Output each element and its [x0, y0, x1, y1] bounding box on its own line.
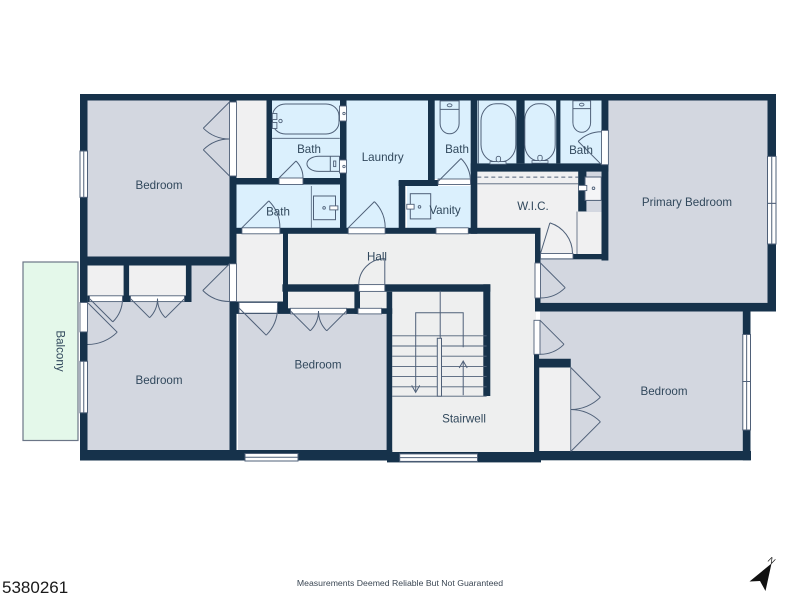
svg-text:Bedroom: Bedroom	[294, 359, 341, 372]
svg-text:Balcony: Balcony	[54, 330, 67, 371]
svg-text:Hall: Hall	[367, 251, 387, 264]
svg-text:Laundry: Laundry	[362, 151, 404, 164]
svg-text:Bath: Bath	[445, 143, 469, 156]
svg-text:Primary Bedroom: Primary Bedroom	[642, 196, 732, 209]
svg-text:Measurements Deemed Reliable B: Measurements Deemed Reliable But Not Gua…	[297, 578, 503, 588]
svg-text:Bedroom: Bedroom	[135, 374, 182, 387]
svg-text:Bath: Bath	[569, 144, 593, 157]
svg-text:Vanity: Vanity	[429, 204, 461, 217]
svg-text:Bath: Bath	[266, 206, 290, 219]
svg-text:W.I.C.: W.I.C.	[517, 200, 549, 213]
svg-text:Stairwell: Stairwell	[442, 413, 486, 426]
svg-text:Bedroom: Bedroom	[640, 385, 687, 398]
svg-text:Bedroom: Bedroom	[135, 179, 182, 192]
svg-text:5380261: 5380261	[2, 578, 68, 597]
svg-text:Bath: Bath	[297, 143, 321, 156]
